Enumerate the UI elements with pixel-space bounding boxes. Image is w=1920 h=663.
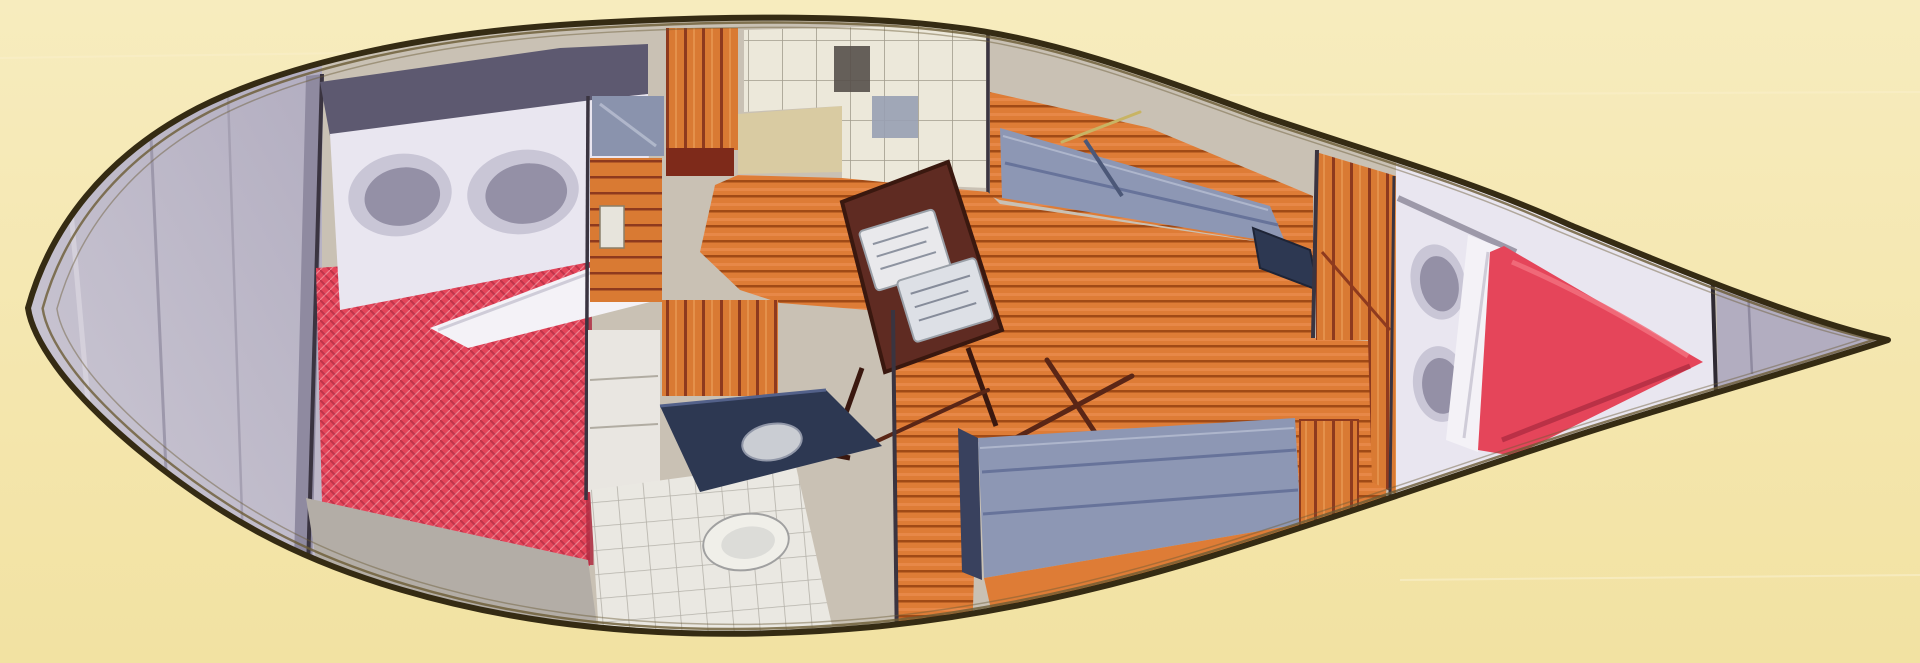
head-cabinet <box>662 300 778 396</box>
floorplan-svg <box>0 0 1920 663</box>
aft-cabin-wall-line <box>586 96 588 500</box>
boat-floorplan <box>0 0 1920 663</box>
galley-cabinet-base <box>666 148 734 176</box>
vberth-wardrobe <box>1316 152 1396 340</box>
galley-tall-cabinet <box>666 28 738 150</box>
aft-cabin-drawer-front <box>600 206 624 248</box>
galley-locker-dark-door <box>834 46 870 92</box>
galley-locker-blue-door <box>872 96 918 138</box>
galley-counter <box>738 106 842 174</box>
head-wall-shelves <box>588 330 660 492</box>
